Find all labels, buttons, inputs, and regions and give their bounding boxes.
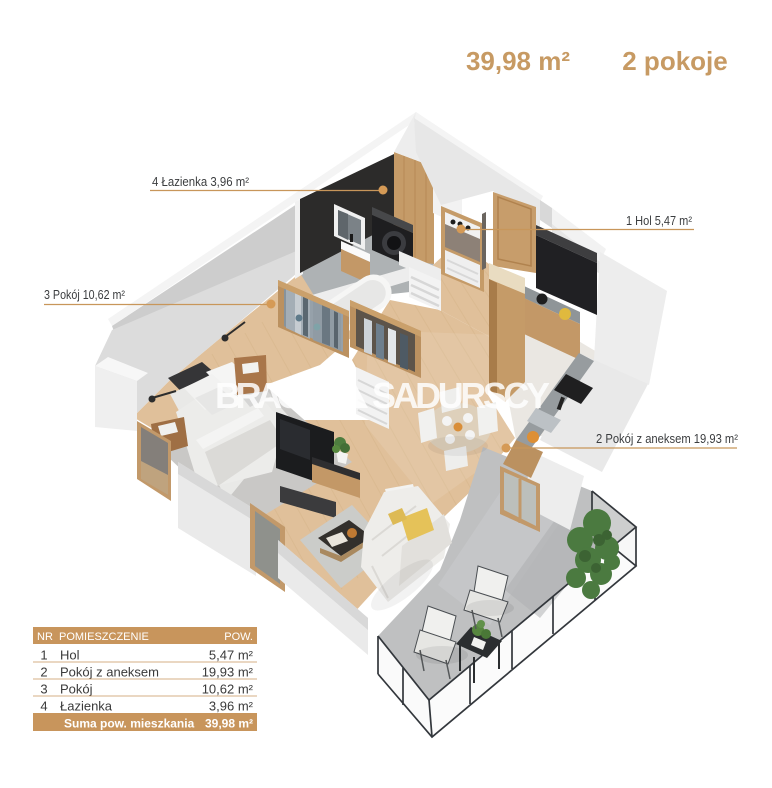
svg-text:39,98 m²: 39,98 m² — [466, 46, 570, 76]
svg-text:39,98 m²: 39,98 m² — [205, 717, 253, 731]
svg-text:POMIESZCZENIE: POMIESZCZENIE — [59, 631, 149, 643]
svg-text:BRACIA: BRACIA — [215, 375, 328, 416]
svg-text:19,93 m²: 19,93 m² — [202, 665, 254, 680]
svg-text:2 pokoje: 2 pokoje — [622, 46, 727, 76]
svg-text:1: 1 — [40, 648, 47, 663]
svg-text:Suma pow. mieszkania: Suma pow. mieszkania — [64, 717, 195, 731]
svg-text:2: 2 — [40, 665, 47, 680]
svg-text:Hol: Hol — [60, 648, 80, 663]
svg-text:5,47 m²: 5,47 m² — [209, 648, 254, 663]
svg-text:4: 4 — [40, 699, 47, 714]
svg-text:3: 3 — [40, 682, 47, 697]
svg-text:1 Hol 5,47 m²: 1 Hol 5,47 m² — [626, 214, 692, 228]
svg-text:SADURSCY: SADURSCY — [372, 375, 550, 416]
svg-text:Łazienka: Łazienka — [60, 699, 113, 714]
svg-text:4 Łazienka 3,96 m²: 4 Łazienka 3,96 m² — [152, 175, 249, 189]
svg-text:2 Pokój z aneksem 19,93 m²: 2 Pokój z aneksem 19,93 m² — [596, 432, 738, 446]
svg-text:NR: NR — [37, 631, 53, 643]
svg-text:10,62 m²: 10,62 m² — [202, 682, 254, 697]
svg-text:Pokój: Pokój — [60, 682, 93, 697]
svg-text:Pokój z aneksem: Pokój z aneksem — [60, 665, 159, 680]
svg-text:POW.: POW. — [224, 631, 253, 643]
svg-text:3,96 m²: 3,96 m² — [209, 699, 254, 714]
svg-text:3 Pokój 10,62 m²: 3 Pokój 10,62 m² — [44, 288, 125, 302]
